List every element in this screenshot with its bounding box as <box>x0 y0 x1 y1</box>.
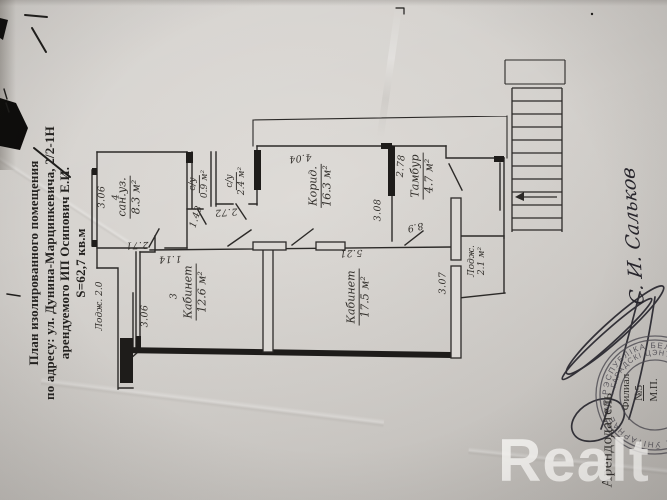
lessor-label: Арендодатель <box>600 392 617 487</box>
floorplan-drawing: РЭСПУБЛІКА БЕЛАРУСЬ • КАМУНАЛЬНАЕ ЎНІТАР… <box>0 0 667 500</box>
plan-wall-piers <box>253 198 461 358</box>
filial-label: Филиал <box>620 374 632 410</box>
title-line-3: арендуемого ИП Осипович Е.И. <box>57 77 73 449</box>
plan-thick-walls <box>92 143 504 383</box>
title-line-2: по адресу: ул. Дунина-Марцинкевича, 2/2-… <box>41 77 57 449</box>
stairs-direction-arrow <box>515 192 524 201</box>
staircase <box>505 60 565 232</box>
torn-corner-shape <box>0 18 28 150</box>
pen-marks <box>4 8 593 296</box>
document-title-block: План изолированного помещения по адресу:… <box>26 77 88 449</box>
scanned-floorplan-photo: РЭСПУБЛІКА БЕЛАРУСЬ • КАМУНАЛЬНАЕ ЎНІТАР… <box>0 0 667 500</box>
title-line-1: План изолированного помещения <box>26 77 42 449</box>
seal-place-mark: М.П. <box>648 378 660 401</box>
title-line-4: S=62,7 кв.м <box>73 77 89 449</box>
filial-number: №5 <box>633 385 645 401</box>
